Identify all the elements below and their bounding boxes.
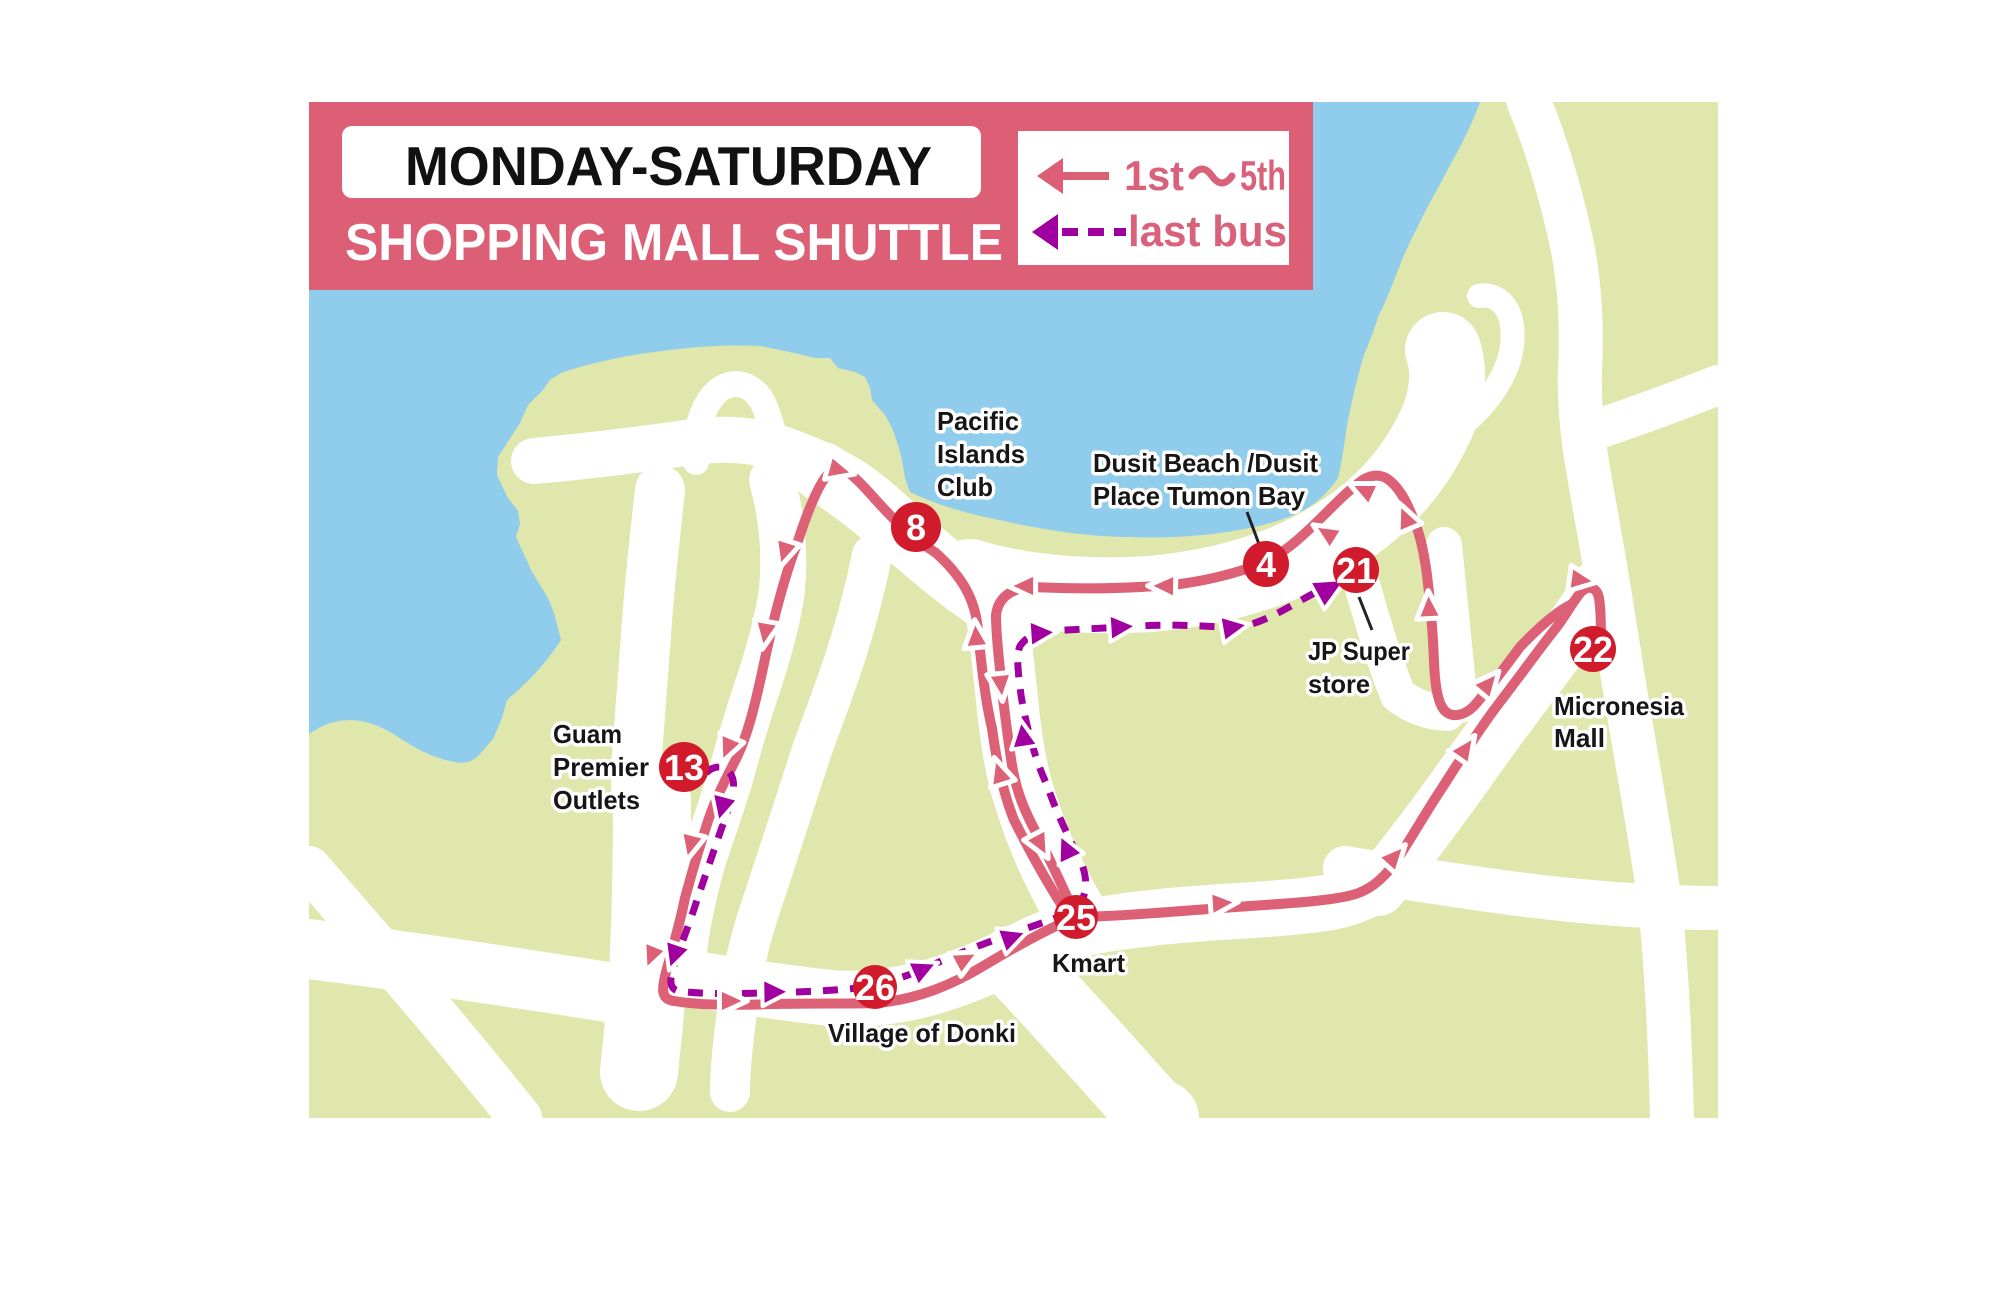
svg-text:JP Super: JP Super — [1308, 636, 1410, 666]
svg-text:13: 13 — [664, 747, 704, 788]
svg-text:SHOPPING MALL SHUTTLE: SHOPPING MALL SHUTTLE — [345, 214, 1003, 272]
svg-text:1st: 1st — [1124, 152, 1184, 199]
svg-text:Village of Donki: Village of Donki — [828, 1018, 1016, 1048]
svg-text:Mall: Mall — [1554, 723, 1605, 753]
svg-text:store: store — [1308, 669, 1370, 699]
svg-text:Kmart: Kmart — [1052, 948, 1125, 978]
svg-text:5th: 5th — [1240, 152, 1286, 199]
svg-text:MONDAY-SATURDAY: MONDAY-SATURDAY — [405, 135, 932, 197]
svg-text:Club: Club — [937, 472, 993, 502]
svg-text:22: 22 — [1573, 629, 1613, 670]
svg-text:25: 25 — [1056, 897, 1096, 938]
svg-text:Outlets: Outlets — [553, 785, 640, 815]
svg-text:8: 8 — [906, 507, 926, 548]
svg-text:Pacific: Pacific — [937, 406, 1019, 436]
svg-text:Dusit Beach /Dusit: Dusit Beach /Dusit — [1093, 448, 1318, 478]
svg-text:Place Tumon Bay: Place Tumon Bay — [1093, 481, 1306, 511]
svg-text:21: 21 — [1336, 550, 1376, 591]
svg-text:Premier: Premier — [553, 752, 649, 782]
svg-text:last bus: last bus — [1128, 207, 1287, 256]
svg-text:4: 4 — [1256, 544, 1276, 585]
svg-text:26: 26 — [855, 967, 895, 1008]
svg-text:Micronesia: Micronesia — [1554, 691, 1685, 721]
svg-text:Islands: Islands — [937, 439, 1025, 469]
svg-text:Guam: Guam — [553, 719, 622, 749]
